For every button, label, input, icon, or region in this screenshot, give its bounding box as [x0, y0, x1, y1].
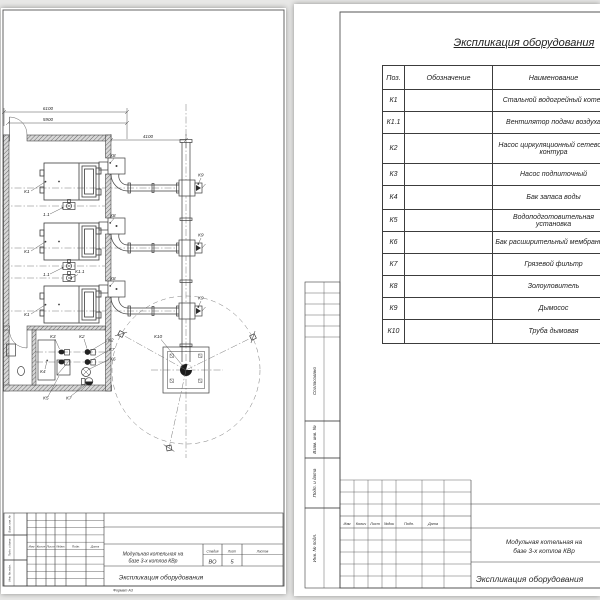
- table-row: К2 Насос циркуляционный сетевого контура: [383, 134, 600, 164]
- label-k1: К1: [24, 189, 30, 195]
- svg-text:Изм: Изм: [29, 545, 36, 549]
- name-cell: Насос циркуляционный сетевого контура: [493, 134, 600, 164]
- designation-cell: [405, 164, 493, 186]
- sheet-plan-drawing: 6100 5900 4100: [1, 8, 286, 594]
- table-row: К4 Бак запаса воды: [383, 186, 600, 210]
- boiler-1: [40, 163, 101, 200]
- side-column-labels: Взам. инв. № Подп. и дата Инв. № подл.: [8, 515, 12, 581]
- designation-cell: [405, 90, 493, 112]
- designation-cell: [405, 112, 493, 134]
- svg-text:Колич: Колич: [356, 522, 367, 526]
- label-k7: К7: [109, 347, 115, 353]
- margin-boxes: [305, 282, 340, 588]
- sheet-number: 5: [230, 560, 234, 566]
- label-leaders: [31, 159, 201, 397]
- stage-label: Стадия: [207, 550, 219, 554]
- svg-text:Дата: Дата: [427, 522, 438, 526]
- project-name-line1: Модульная котельная на: [123, 552, 184, 558]
- label-k8: К8: [110, 213, 116, 219]
- pos-cell: К7: [383, 254, 405, 276]
- sheet-label: Лист: [227, 550, 237, 554]
- pos-cell: К2: [383, 134, 405, 164]
- label-k9: К9: [198, 296, 204, 302]
- name-cell: Вентилятор подачи воздуха: [493, 112, 600, 134]
- name-cell: Насос подпиточный: [493, 164, 600, 186]
- svg-text:Взам. инв. №: Взам. инв. №: [8, 515, 12, 532]
- col-header-designation: Обозначение: [405, 66, 493, 90]
- svg-text:Колич: Колич: [37, 545, 46, 549]
- document-name: Экспликация оборудования: [119, 574, 204, 582]
- label-k9: К9: [198, 233, 204, 239]
- svg-text:№док: №док: [56, 545, 65, 549]
- boiler-3: [40, 286, 101, 323]
- pos-cell: К5: [383, 210, 405, 232]
- designation-cell: [405, 232, 493, 254]
- dim-flue-run: 4100: [143, 134, 154, 139]
- table-row: К1 Стальной водогрейный котел: [383, 90, 600, 112]
- document-name: Экспликация оборудования: [476, 574, 584, 584]
- designation-cell: [405, 210, 493, 232]
- svg-text:Лист: Лист: [46, 545, 55, 549]
- designation-cell: [405, 186, 493, 210]
- label-k1: К1: [24, 249, 30, 255]
- name-cell: Бак запаса воды: [493, 186, 600, 210]
- sheets-label: Листов: [256, 550, 269, 554]
- label-k1: К1: [24, 312, 30, 318]
- title-block-content: Модульная котельная на базе 3-х котлов К…: [476, 538, 584, 584]
- col-header-pos: Поз.: [383, 66, 405, 90]
- sheet-specification: Согласовано Взам. инв. № Подп. и дата Ин…: [294, 4, 600, 596]
- label-k2: К2: [79, 334, 85, 340]
- name-cell: Бак расширительный мембранный: [493, 232, 600, 254]
- name-cell: Труба дымовая: [493, 320, 600, 344]
- margin-box-labels: Согласовано Взам. инв. № Подп. и дата Ин…: [312, 367, 317, 563]
- table-row: К1.1 Вентилятор подачи воздуха: [383, 112, 600, 134]
- label-k6: К6: [110, 357, 116, 363]
- label-k3: К3: [50, 334, 56, 340]
- table-row: К10 Труба дымовая: [383, 320, 600, 344]
- dim-inner-width: 5900: [43, 117, 54, 122]
- fan-2: [63, 260, 75, 270]
- label-k1-1: К1.1: [75, 269, 85, 275]
- table-row: К7 Грязевой фильтр: [383, 254, 600, 276]
- label-k4: К4: [40, 369, 46, 375]
- title-block: [340, 480, 600, 588]
- guy-anchor-1: [115, 328, 127, 340]
- pos-cell: К4: [383, 186, 405, 210]
- format-note: Формат А3: [113, 589, 133, 593]
- pos-cell: К8: [383, 276, 405, 298]
- designation-cell: [405, 276, 493, 298]
- table-row: К6 Бак расширительный мембранный: [383, 232, 600, 254]
- col-header-name: Наименование: [493, 66, 600, 90]
- drawing-frame: [3, 10, 284, 586]
- flue-row-2: [99, 218, 206, 256]
- page-title: Экспликация оборудования: [414, 37, 600, 49]
- designation-cell: [405, 320, 493, 344]
- designation-cell: [405, 254, 493, 276]
- pos-cell: К3: [383, 164, 405, 186]
- equipment-table: Поз. Обозначение Наименование К1 Стально…: [382, 65, 600, 344]
- label-k8: К8: [110, 153, 116, 159]
- pos-cell: К1.1: [383, 112, 405, 134]
- svg-text:№док: №док: [384, 522, 394, 526]
- guy-wires: [121, 334, 253, 448]
- table-row: К8 Золоуловитель: [383, 276, 600, 298]
- project-name-line2: базе 3-х котлов КВр: [513, 547, 575, 555]
- svg-text:Подп. и дата: Подп. и дата: [8, 538, 12, 556]
- label-k2: К2: [108, 338, 114, 344]
- name-cell: Стальной водогрейный котел: [493, 90, 600, 112]
- name-cell: Грязевой фильтр: [493, 254, 600, 276]
- equipment-labels: К1 К1 К1 1.1 1.1 К1.1 К8 К8 К8 К9 К9 К9 …: [24, 153, 204, 402]
- name-cell: Водоподготовительная установка: [493, 210, 600, 232]
- svg-text:Подп.: Подп.: [72, 545, 80, 549]
- pos-cell: К9: [383, 298, 405, 320]
- label-k1-1-short: 1.1: [43, 212, 50, 218]
- label-k1-1-short: 1.1: [43, 272, 50, 278]
- dimension-lines: [2, 108, 188, 148]
- name-cell: Дымосос: [493, 298, 600, 320]
- dim-overall-width: 6100: [43, 106, 54, 111]
- svg-text:Изм: Изм: [343, 522, 350, 526]
- table-header-row: Поз. Обозначение Наименование: [383, 66, 600, 90]
- label-k10: К10: [154, 334, 162, 340]
- svg-text:Дата: Дата: [90, 545, 99, 549]
- pos-cell: К1: [383, 90, 405, 112]
- project-name-line1: Модульная котельная на: [506, 538, 583, 546]
- designation-cell: [405, 298, 493, 320]
- pos-cell: К6: [383, 232, 405, 254]
- desktop: { "colors": { "page_bg": "#e7e7e6", "she…: [0, 0, 600, 600]
- label-k7: К7: [66, 396, 72, 402]
- title-block-headers: Изм Колич Лист №док Подп. Дата: [29, 545, 100, 549]
- project-name-line2: базе 3-х котлов КВр: [128, 559, 177, 565]
- table-row: К3 Насос подпиточный: [383, 164, 600, 186]
- label-podp-data: Подп. и дата: [312, 468, 317, 497]
- pump-room-equipment: [7, 340, 96, 385]
- label-inv-podl: Инв. № подл.: [312, 534, 317, 563]
- label-k9: К9: [198, 173, 204, 179]
- name-cell: Золоуловитель: [493, 276, 600, 298]
- pos-cell: К10: [383, 320, 405, 344]
- label-soglasovano: Согласовано: [312, 367, 317, 395]
- label-vzam-inv: Взам. инв. №: [312, 425, 317, 453]
- flue-row-1: [99, 158, 206, 196]
- svg-text:Инв. № подл.: Инв. № подл.: [8, 564, 12, 582]
- boiler-2: [40, 223, 101, 260]
- label-k5: К5: [43, 396, 49, 402]
- svg-text:Подп.: Подп.: [404, 522, 414, 526]
- label-k8: К8: [110, 276, 116, 282]
- fan-1: [63, 200, 75, 210]
- table-row: К5 Водоподготовительная установка: [383, 210, 600, 232]
- designation-cell: [405, 134, 493, 164]
- fan-3: [63, 272, 75, 282]
- guy-anchor-3: [164, 443, 175, 454]
- guy-anchor-2: [247, 331, 259, 343]
- flue-row-3: [99, 281, 206, 319]
- title-block-headers: Изм Колич Лист №док Подп. Дата: [343, 522, 438, 526]
- plan-drawing-canvas: 6100 5900 4100: [1, 8, 286, 594]
- table-row: К9 Дымосос: [383, 298, 600, 320]
- svg-text:Лист: Лист: [369, 522, 380, 526]
- stage-value: ВО: [209, 560, 218, 566]
